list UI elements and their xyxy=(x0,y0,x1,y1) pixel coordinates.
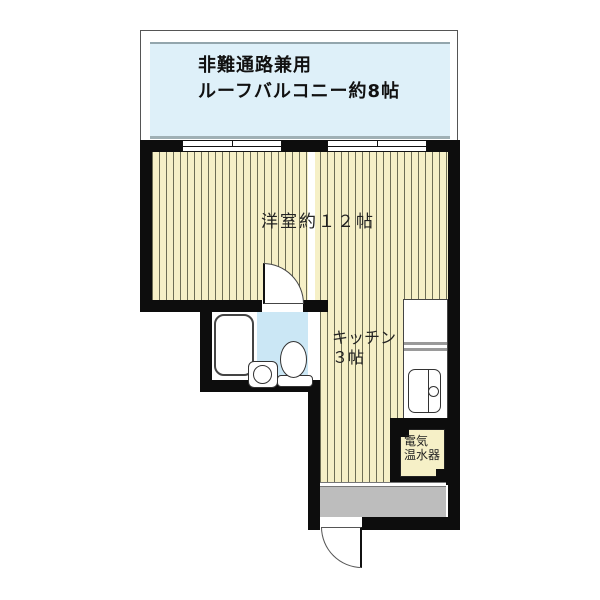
wall-mid-vertical xyxy=(308,380,320,530)
water-heater-label: 電気 温水器 xyxy=(404,434,440,462)
sink-drain-icon xyxy=(428,386,439,397)
entrance-door-arc-icon xyxy=(321,527,362,568)
heater-corner-notch xyxy=(436,469,445,477)
window-rail xyxy=(328,146,426,147)
balcony-label-line1: 非難通路兼用 xyxy=(198,53,400,79)
window-rail xyxy=(183,146,281,147)
water-heater-label-line1: 電気 xyxy=(404,434,440,448)
balcony-label: 非難通路兼用 ルーフバルコニー約8帖 xyxy=(198,53,400,105)
entrance-floor xyxy=(320,487,446,517)
toilet-icon xyxy=(280,341,307,378)
sliding-window-icon xyxy=(182,140,282,152)
balcony-label-line2: ルーフバルコニー約8帖 xyxy=(198,79,400,105)
washbasin-bowl-icon xyxy=(253,365,272,384)
window-sash-tick xyxy=(377,141,378,146)
floorplan-canvas: 非難通路兼用 ルーフバルコニー約8帖 xyxy=(0,0,600,600)
kitchen-counter xyxy=(403,299,448,419)
window-sash-tick xyxy=(232,141,233,146)
counter-divider xyxy=(404,342,447,351)
water-heater-label-line2: 温水器 xyxy=(404,448,440,462)
sliding-window-icon xyxy=(327,140,427,152)
kitchen-label-line2: ３帖 xyxy=(332,348,396,368)
kitchen-label-line1: キッチン xyxy=(332,328,396,348)
kitchen-label: キッチン ３帖 xyxy=(332,328,396,368)
wall-left xyxy=(140,140,152,312)
wall-bath-left xyxy=(200,300,212,392)
wall-right xyxy=(448,140,460,530)
living-room-label: 洋室約１２帖 xyxy=(261,207,375,232)
kitchen-sink-icon xyxy=(408,369,441,413)
